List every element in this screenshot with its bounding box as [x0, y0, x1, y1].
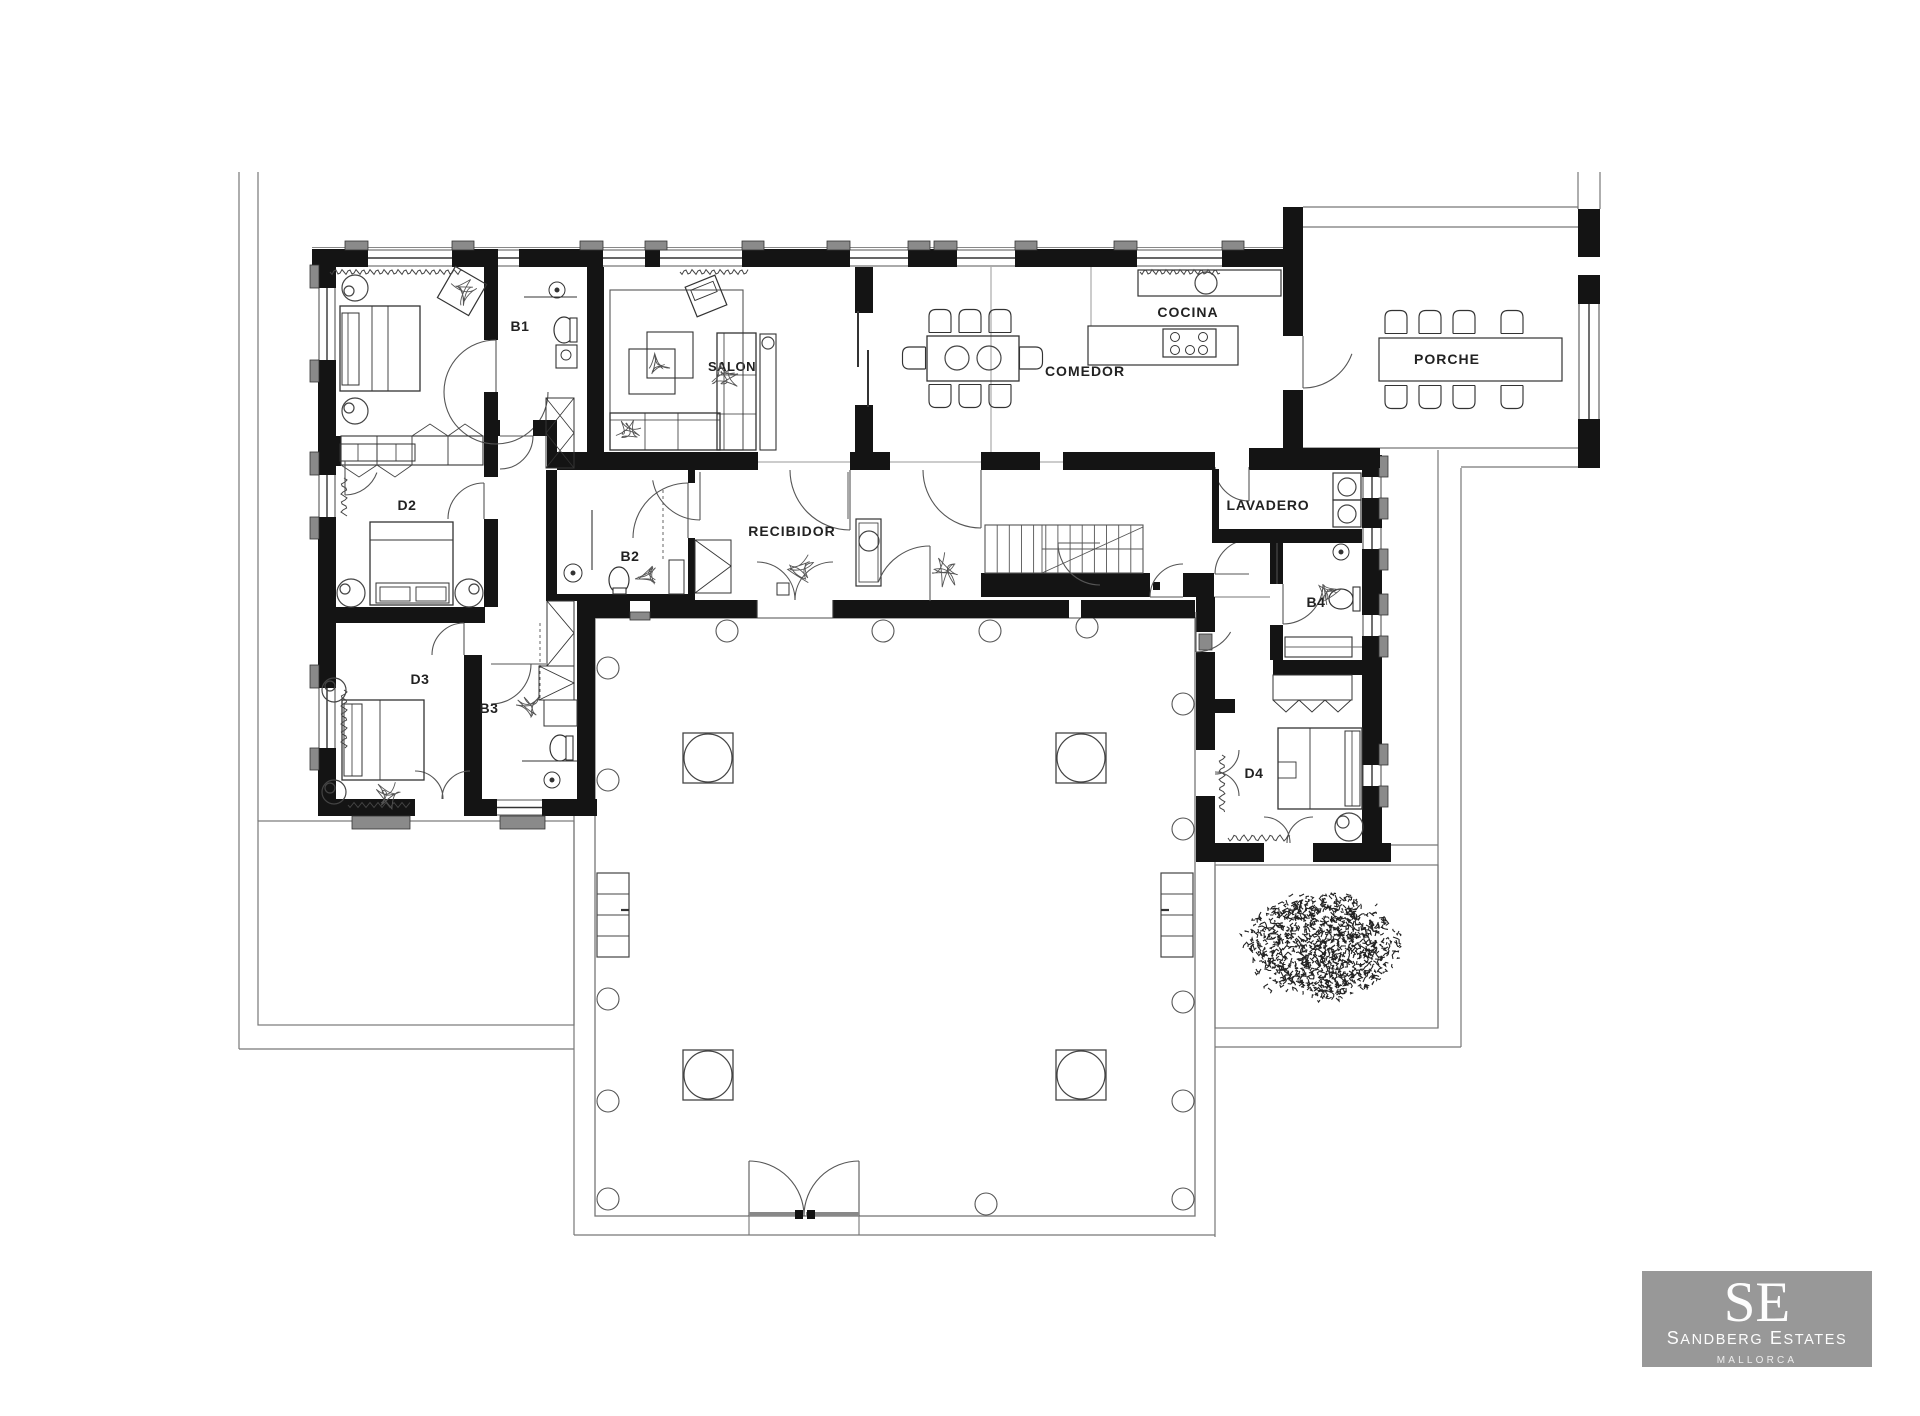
svg-text:D4: D4: [1245, 765, 1264, 781]
svg-text:B4: B4: [1307, 594, 1326, 610]
svg-text:D3: D3: [411, 671, 430, 687]
svg-text:PORCHE: PORCHE: [1414, 351, 1480, 367]
svg-text:D2: D2: [398, 497, 417, 513]
svg-text:SALON: SALON: [708, 359, 756, 374]
svg-text:LAVADERO: LAVADERO: [1227, 497, 1310, 513]
svg-text:B2: B2: [621, 548, 640, 564]
svg-text:B3: B3: [480, 700, 499, 716]
svg-text:RECIBIDOR: RECIBIDOR: [748, 523, 836, 539]
svg-text:MALLORCA: MALLORCA: [1717, 1355, 1798, 1366]
svg-text:SE: SE: [1724, 1271, 1791, 1334]
svg-text:COCINA: COCINA: [1157, 304, 1218, 320]
svg-text:B1: B1: [511, 318, 530, 334]
